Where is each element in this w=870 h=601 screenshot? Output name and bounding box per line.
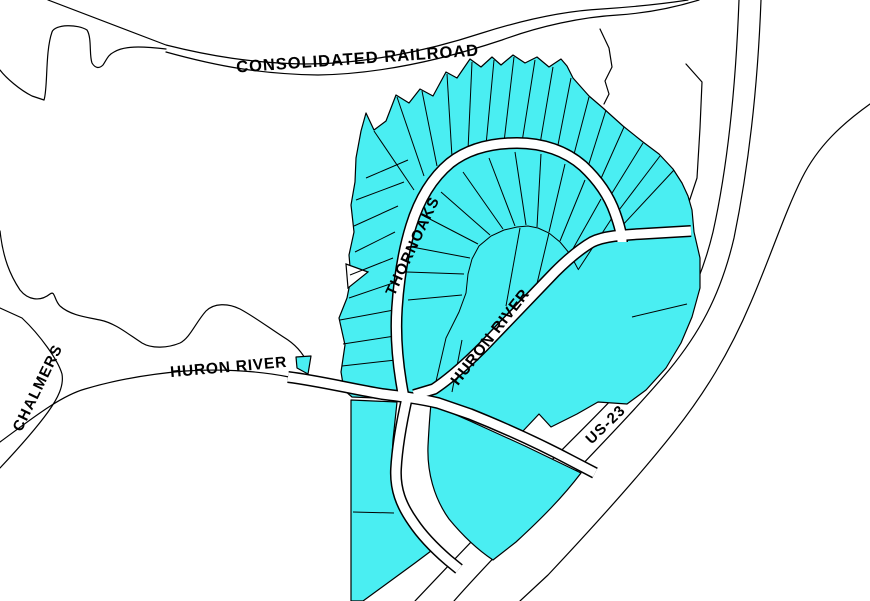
parcel-map-viewport: CONSOLIDATED RAILROAD THORNOAKS HURON RI…	[0, 0, 870, 601]
parcel-map-canvas: CONSOLIDATED RAILROAD THORNOAKS HURON RI…	[0, 0, 870, 601]
